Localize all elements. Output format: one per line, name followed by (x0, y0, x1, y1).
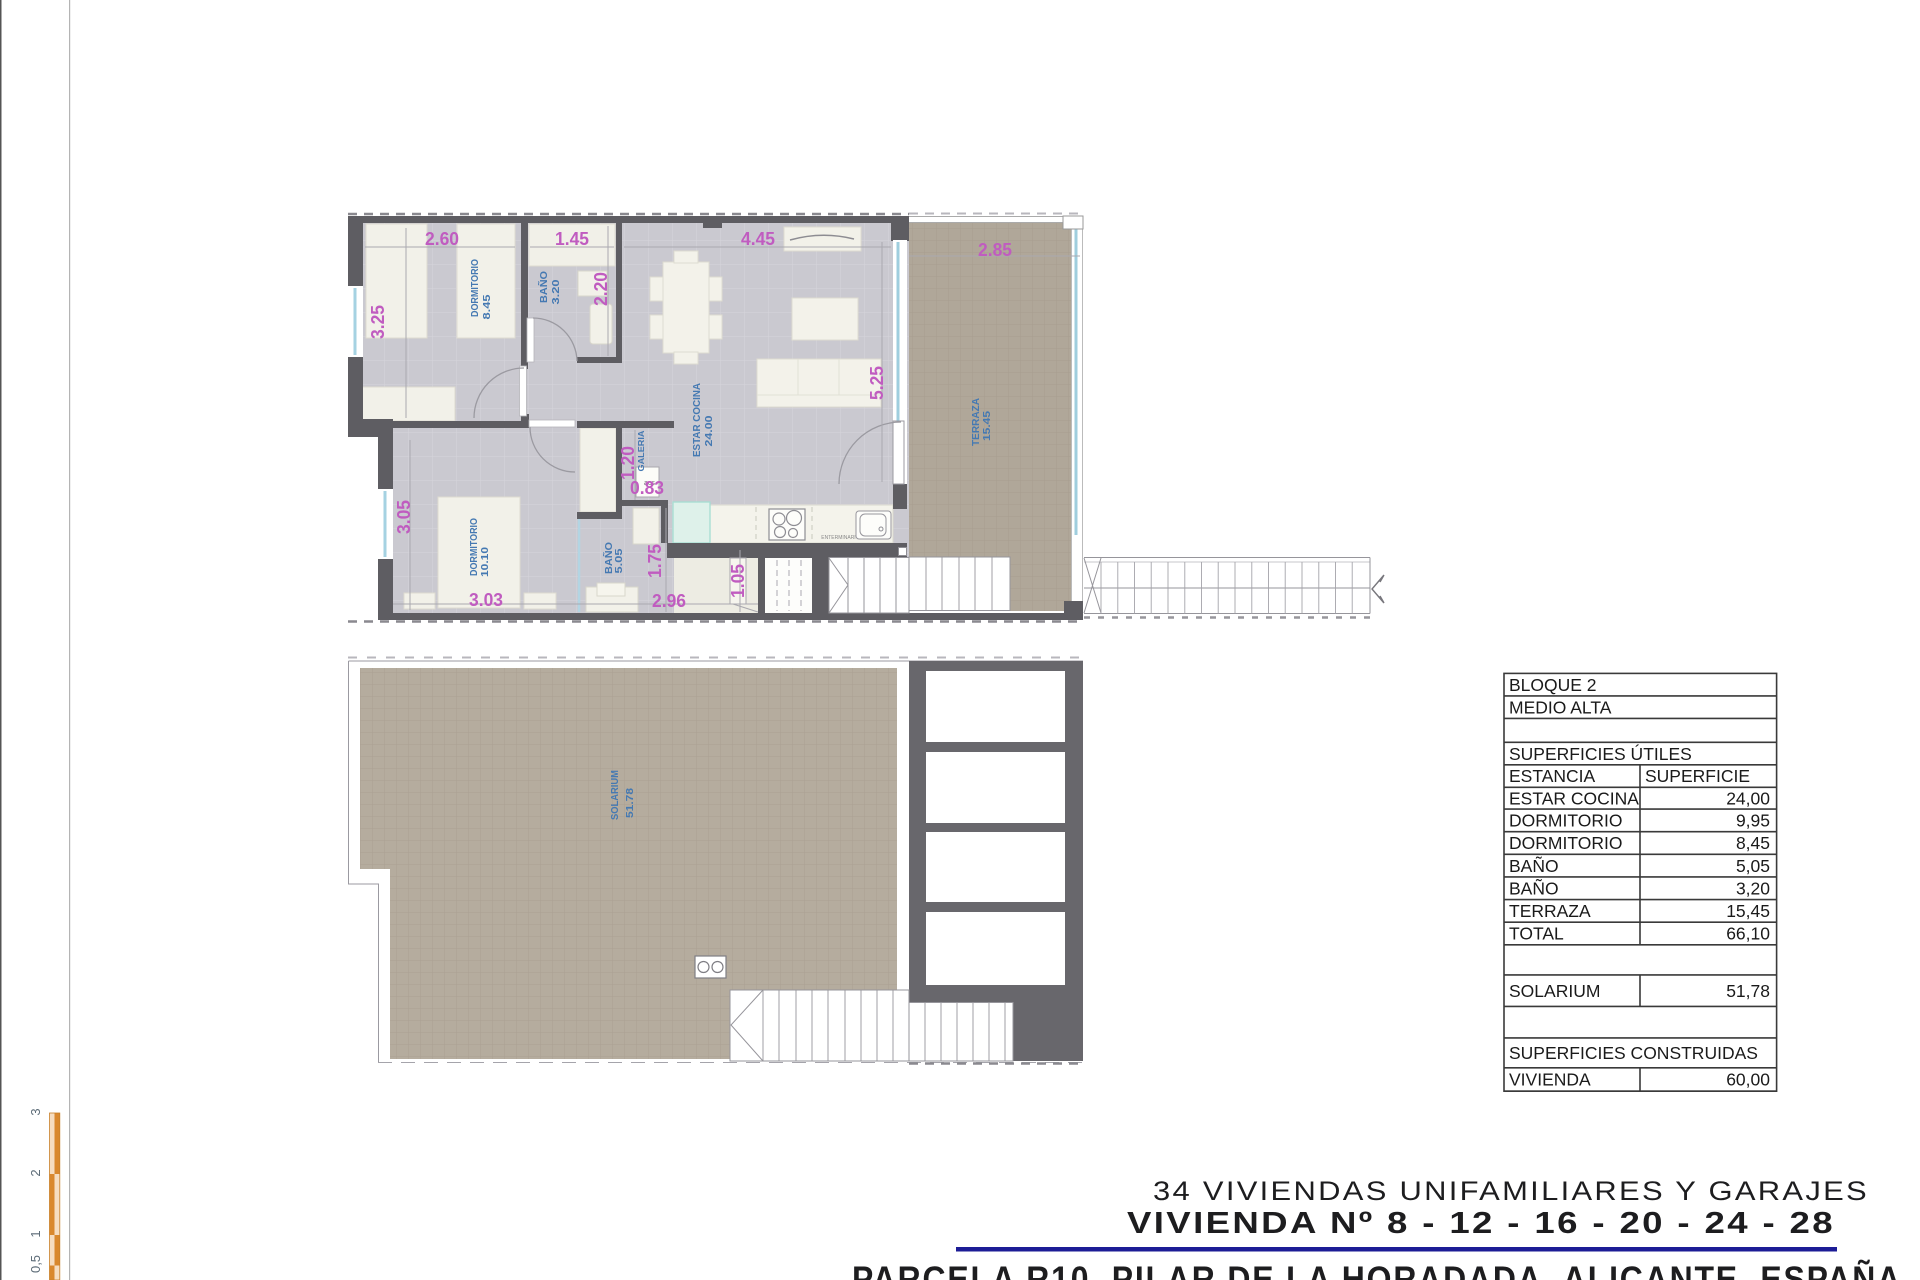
svg-text:8,45: 8,45 (1736, 833, 1770, 853)
svg-text:TERRAZA: TERRAZA (971, 398, 982, 446)
svg-text:SOLARIUM: SOLARIUM (610, 770, 621, 820)
svg-text:TERRAZA: TERRAZA (1509, 901, 1591, 921)
svg-text:8.45: 8.45 (482, 294, 493, 320)
svg-text:3.03: 3.03 (469, 590, 503, 610)
svg-text:0,5: 0,5 (28, 1255, 43, 1273)
svg-text:2.85: 2.85 (978, 240, 1012, 260)
svg-text:TOTAL: TOTAL (1509, 924, 1564, 944)
svg-text:2: 2 (28, 1169, 43, 1176)
svg-text:SUPERFICIES CONSTRUIDAS: SUPERFICIES CONSTRUIDAS (1509, 1043, 1758, 1063)
svg-text:24.00: 24.00 (704, 415, 715, 447)
svg-text:SUPERFICIES ÚTILES: SUPERFICIES ÚTILES (1509, 743, 1692, 764)
svg-text:MEDIO ALTA: MEDIO ALTA (1509, 697, 1612, 717)
svg-text:66,10: 66,10 (1726, 924, 1770, 944)
svg-text:1.45: 1.45 (555, 229, 589, 249)
svg-text:3: 3 (28, 1108, 43, 1115)
svg-text:DORMITORIO: DORMITORIO (470, 259, 481, 317)
svg-text:5.25: 5.25 (867, 366, 887, 400)
svg-text:15.45: 15.45 (982, 410, 993, 441)
svg-text:1: 1 (28, 1230, 43, 1237)
svg-text:BAÑO: BAÑO (1509, 878, 1559, 899)
svg-text:10.10: 10.10 (480, 546, 491, 577)
svg-text:GALERIA: GALERIA (637, 430, 646, 471)
svg-text:BLOQUE 2: BLOQUE 2 (1509, 675, 1597, 695)
svg-text:ENTERMINARIT: ENTERMINARIT (821, 535, 859, 541)
svg-text:ESTANCIA: ESTANCIA (1509, 766, 1596, 786)
svg-text:9,95: 9,95 (1736, 811, 1770, 831)
svg-text:1.75: 1.75 (645, 544, 665, 578)
svg-text:3,20: 3,20 (1736, 879, 1770, 899)
svg-text:DORMITORIO: DORMITORIO (469, 518, 480, 576)
svg-text:2.96: 2.96 (652, 591, 686, 611)
svg-text:SUPERFICIE: SUPERFICIE (1645, 766, 1750, 786)
svg-text:DORMITORIO: DORMITORIO (1509, 833, 1622, 853)
svg-text:3.25: 3.25 (368, 305, 388, 339)
svg-text:5,05: 5,05 (1736, 856, 1770, 876)
svg-text:3.05: 3.05 (394, 500, 414, 534)
svg-text:5.05: 5.05 (614, 548, 625, 574)
svg-text:2.20: 2.20 (591, 272, 611, 306)
svg-text:4.45: 4.45 (741, 229, 775, 249)
svg-text:0.83: 0.83 (630, 478, 664, 498)
svg-text:SOLARIUM: SOLARIUM (1509, 981, 1600, 1001)
svg-text:ESTAR COCINA: ESTAR COCINA (1509, 788, 1639, 808)
svg-text:51,78: 51,78 (1726, 981, 1770, 1001)
svg-text:BAÑO: BAÑO (537, 271, 550, 303)
svg-text:51.78: 51.78 (625, 787, 636, 818)
svg-text:1.05: 1.05 (728, 564, 748, 598)
svg-text:1.20: 1.20 (618, 446, 638, 480)
svg-text:ESTAR COCINA: ESTAR COCINA (692, 383, 703, 457)
svg-text:DORMITORIO: DORMITORIO (1509, 811, 1622, 831)
svg-text:3.20: 3.20 (551, 279, 562, 305)
svg-text:24,00: 24,00 (1726, 788, 1770, 808)
svg-text:PARCELA R10, PILAR DE LA HORAD: PARCELA R10, PILAR DE LA HORADADA, ALICA… (852, 1260, 1902, 1280)
svg-text:BAÑO: BAÑO (1509, 855, 1559, 876)
svg-text:15,45: 15,45 (1726, 901, 1770, 921)
svg-text:60,00: 60,00 (1726, 1070, 1770, 1090)
svg-text:VIVIENDA: VIVIENDA (1509, 1070, 1591, 1090)
svg-text:34 VIVIENDAS UNIFAMILIARES Y G: 34 VIVIENDAS UNIFAMILIARES Y GARAJES (1153, 1176, 1869, 1206)
svg-text:2.60: 2.60 (425, 229, 459, 249)
svg-text:VIVIENDA Nº 8 - 12 - 16 - 20 -: VIVIENDA Nº 8 - 12 - 16 - 20 - 24 - 28 (1127, 1205, 1835, 1240)
